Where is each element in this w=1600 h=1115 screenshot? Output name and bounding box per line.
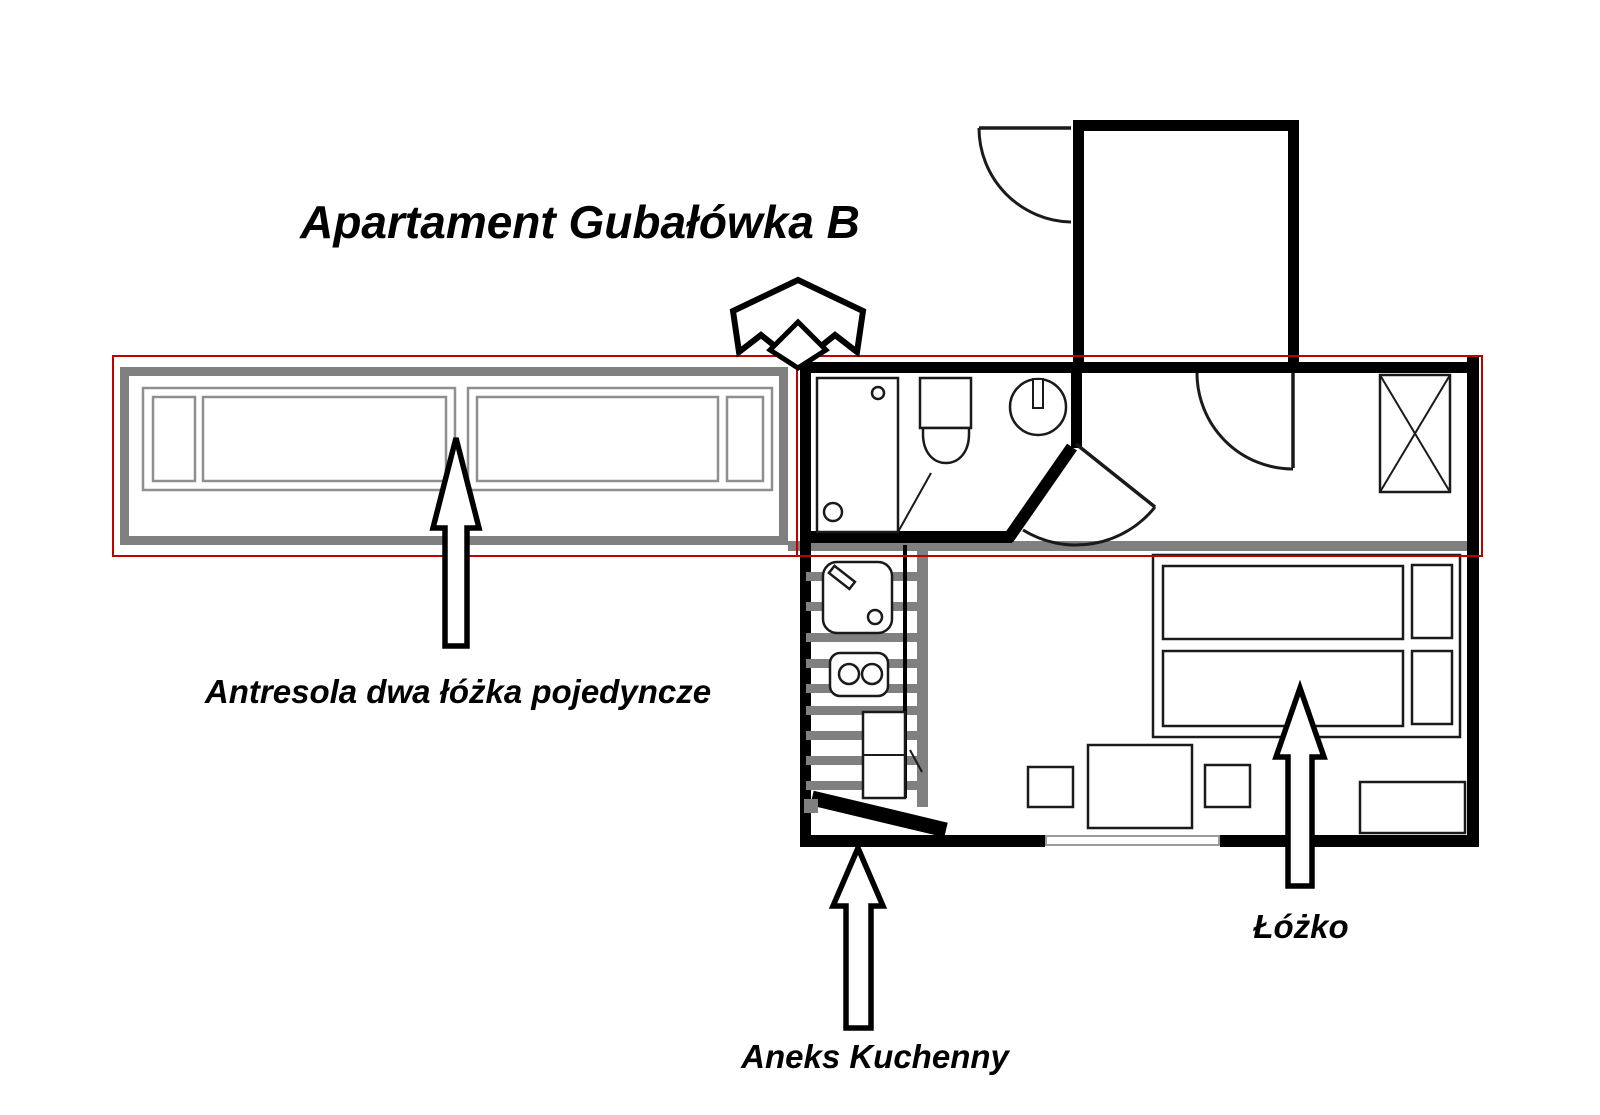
corridor-wall-left [1073, 120, 1084, 362]
bed-label: Łóżko [1252, 908, 1348, 945]
bathroom-wall-diagonal [1008, 447, 1072, 539]
chair-left [1028, 767, 1073, 807]
wall-bottom-right-segment [1220, 835, 1479, 847]
shower-head [872, 387, 884, 399]
bed-mattress-bottom [1163, 651, 1403, 726]
stove [830, 653, 888, 696]
corridor-wall-right [1288, 120, 1299, 362]
floor-plan-drawing: Apartament Gubałówka B Antresola dwa łóż… [0, 0, 1600, 1115]
tv-cabinet [1360, 782, 1465, 833]
mezzanine-label: Antresola dwa łóżka pojedyncze [204, 673, 711, 710]
stair-rung [806, 633, 928, 642]
living-room-door-swing [1197, 373, 1293, 469]
wall-bottom-left-segment [800, 835, 1045, 847]
table [1088, 745, 1192, 828]
bathroom-wall-right [1071, 373, 1082, 448]
kitchen-sink [823, 562, 892, 633]
window [1046, 836, 1219, 845]
wall-top [800, 362, 1467, 373]
living-room-door [1197, 373, 1293, 469]
bed-pillow [727, 397, 763, 481]
mezzanine-bed-2 [468, 388, 772, 490]
entry-door [979, 128, 1071, 222]
counter-end-post [804, 799, 818, 813]
entry-door-swing [979, 128, 1071, 222]
living-room [1028, 555, 1465, 833]
toilet-bowl [923, 428, 969, 463]
bed-mattress [203, 397, 446, 481]
kitchen-sink-drain [868, 610, 882, 624]
bathroom-door-leaf [1076, 444, 1155, 507]
bed-pillow-top [1412, 565, 1452, 638]
plan-title: Apartament Gubałówka B [299, 196, 860, 248]
shower-drain [824, 503, 842, 521]
entrance-marker [733, 280, 863, 368]
bed-mattress-top [1163, 566, 1403, 639]
washbasin-tap [1033, 379, 1043, 408]
toilet-tank [920, 378, 971, 428]
bathroom [817, 378, 1155, 545]
corridor-wall-top [1073, 120, 1299, 131]
kitchen-label: Aneks Kuchenny [740, 1038, 1010, 1075]
bed-mattress [477, 397, 718, 481]
bathroom-door-swing [1023, 507, 1155, 545]
kitchen-up-arrow-icon [833, 848, 883, 1028]
mezzanine-bed-1 [143, 388, 455, 490]
wall-right [1467, 357, 1479, 846]
shower-door [898, 473, 931, 532]
toilet [920, 378, 971, 463]
bed-pillow-bottom [1412, 651, 1452, 724]
chair-right [1205, 765, 1250, 807]
wardrobe [1380, 375, 1450, 492]
washbasin [1010, 379, 1066, 435]
floor-plan-page: Apartament Gubałówka B Antresola dwa łóż… [0, 0, 1600, 1115]
bed-pillow [153, 397, 195, 481]
